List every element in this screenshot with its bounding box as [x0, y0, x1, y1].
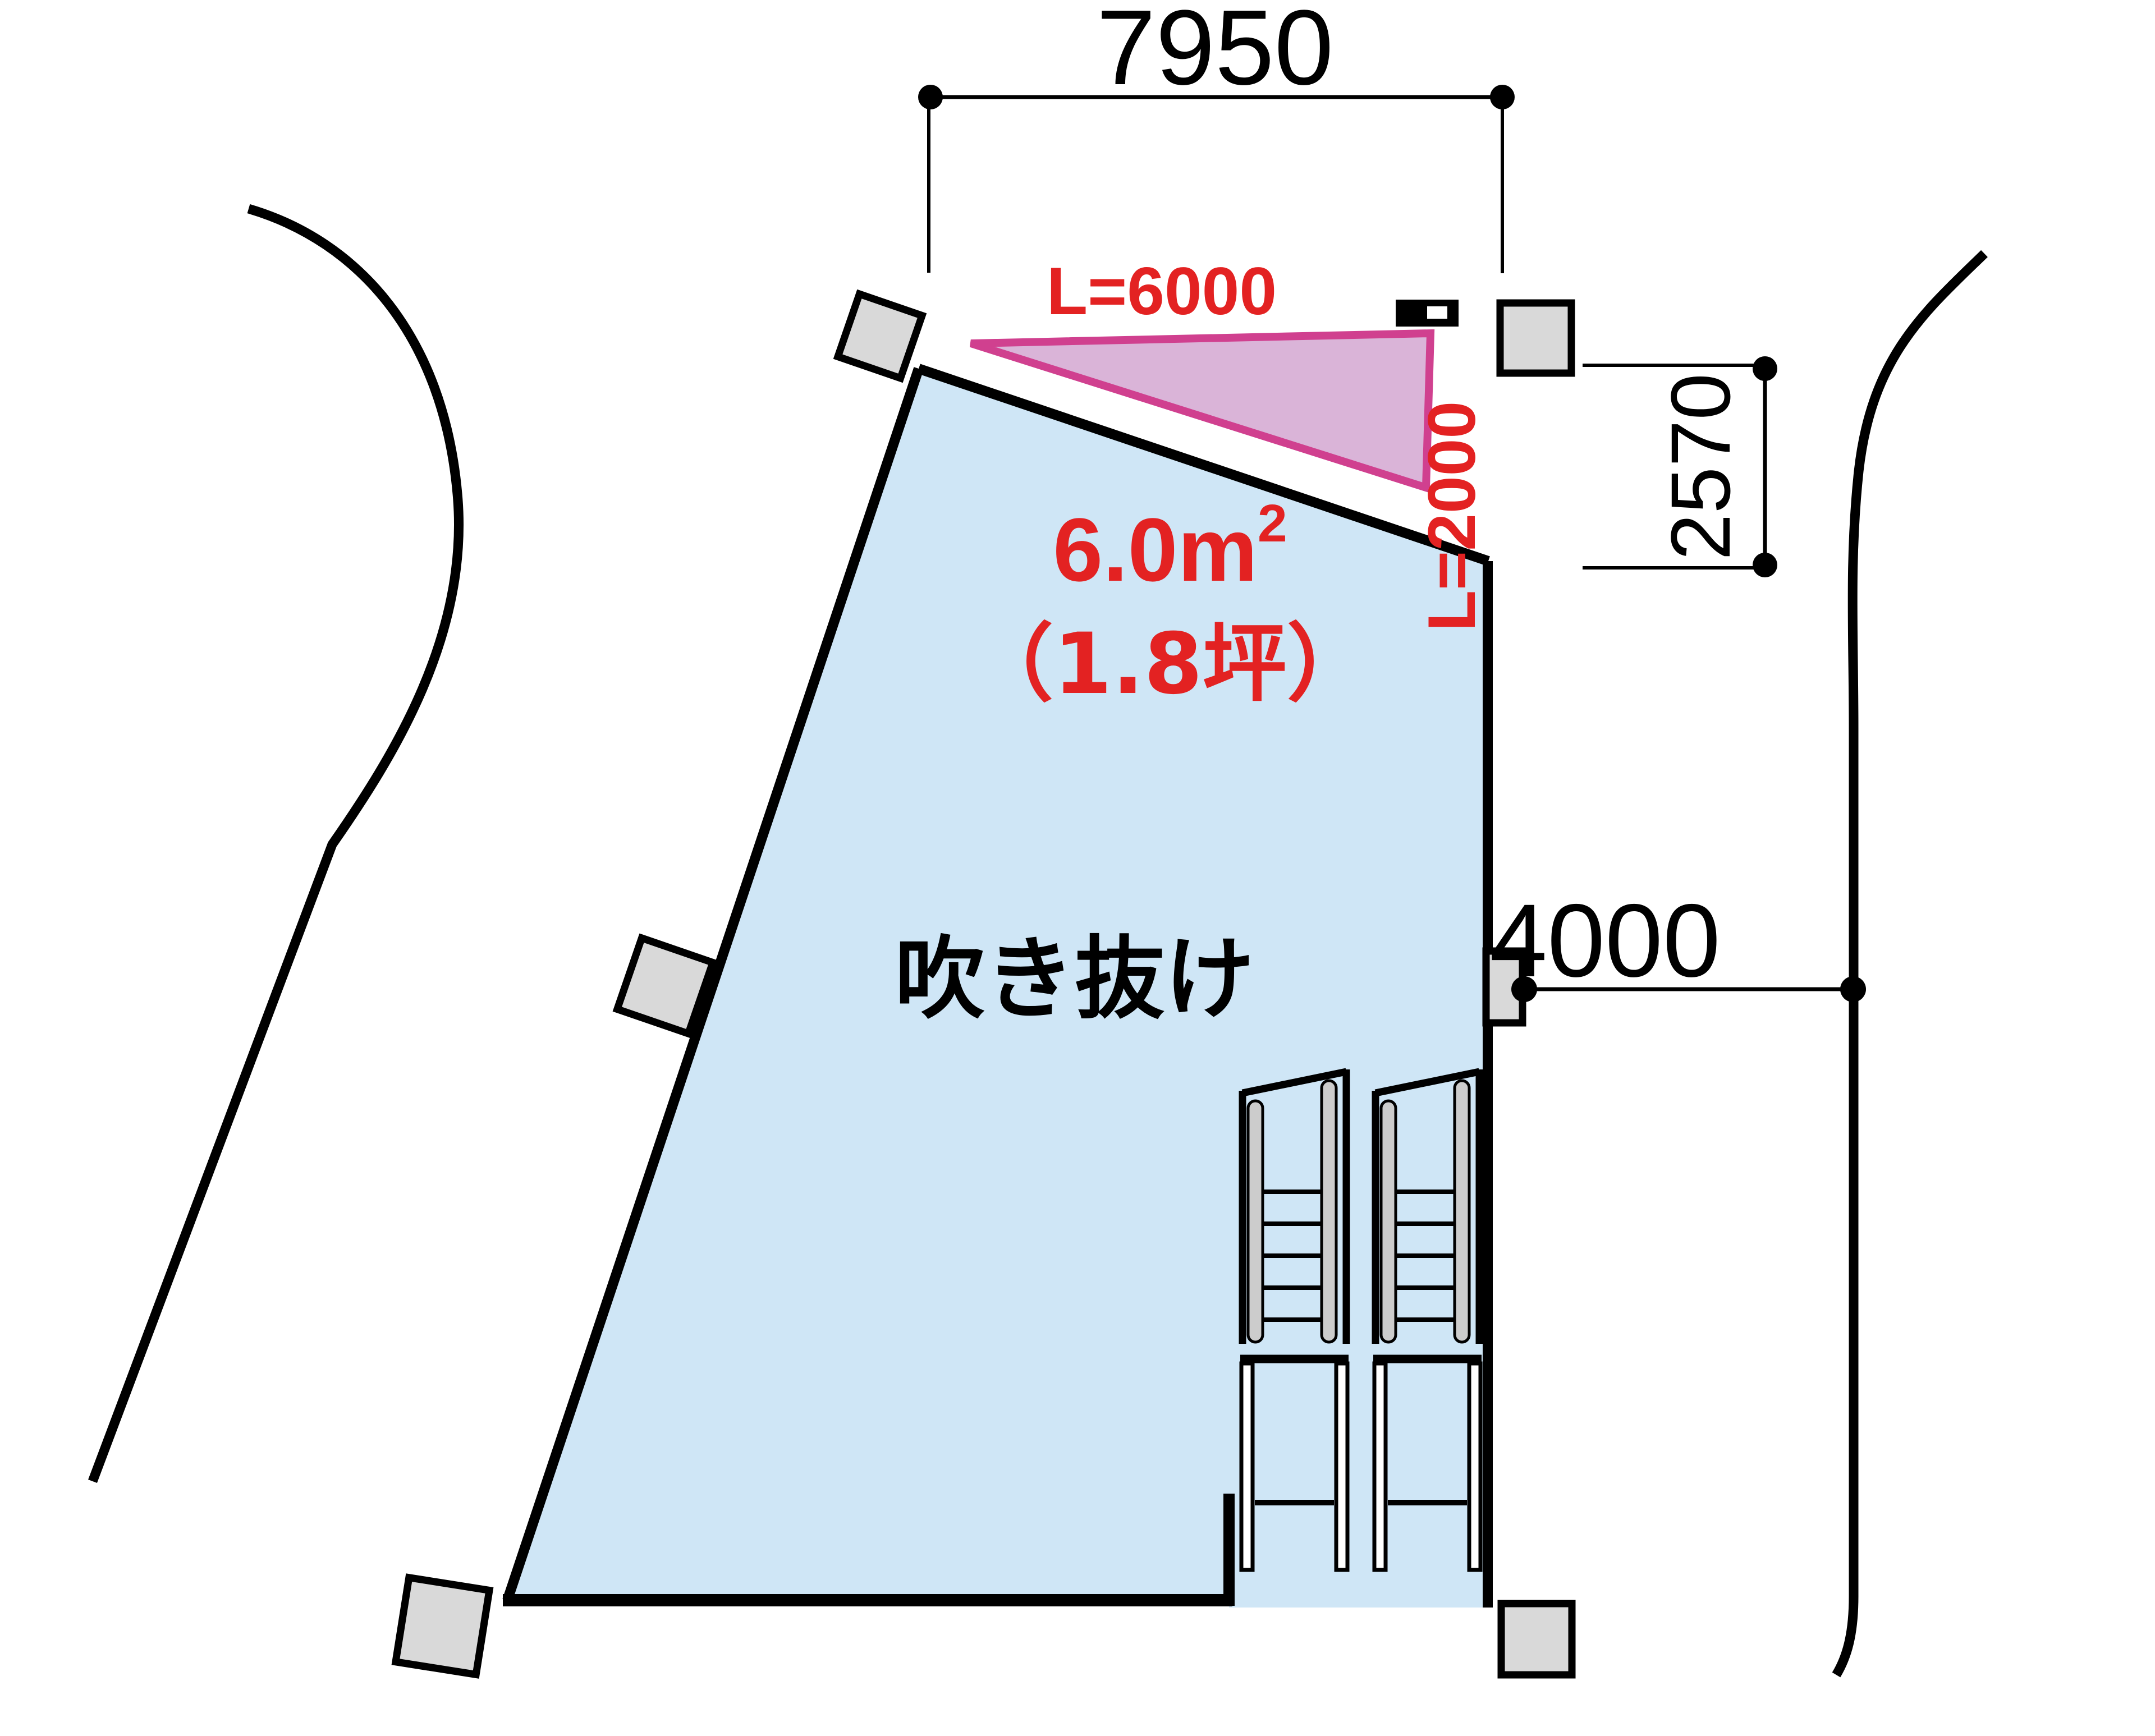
column-top-left	[838, 294, 922, 378]
road-edge-right	[1836, 254, 1984, 1675]
dimension-text-2570: 2570	[1653, 373, 1748, 561]
floor-plan-canvas: 7950 2570 4000 L=6000 L=2000 6.0m2 （1.8坪…	[0, 0, 2155, 1736]
area-value: 6.0m	[1053, 499, 1258, 600]
area-tsubo-label: （1.8坪）	[969, 616, 1371, 713]
dimension-7950: 7950	[918, 0, 1515, 273]
stair-rail	[1322, 1081, 1336, 1342]
stair-lower-bar	[1336, 1363, 1347, 1570]
column-bottom-right	[1501, 1604, 1572, 1675]
stair-rail	[1381, 1101, 1396, 1342]
column-bottom-left	[396, 1578, 489, 1675]
dimension-text-7950: 7950	[1097, 0, 1334, 107]
stair-rail	[1248, 1101, 1263, 1342]
stair-lower-bar	[1374, 1363, 1386, 1570]
dimension-dot	[1753, 553, 1777, 577]
stair-lower-bar	[1241, 1363, 1253, 1570]
dimension-4000: 4000	[1489, 883, 1866, 1002]
dimension-dot	[1490, 85, 1515, 109]
road-edge-left	[93, 209, 459, 1481]
area-label: 6.0m2	[1053, 494, 1287, 600]
area-superscript: 2	[1258, 494, 1287, 553]
void-room-label: 吹き抜け	[895, 926, 1254, 1031]
stair-lower-bar	[1469, 1363, 1480, 1570]
gate-symbol	[1396, 300, 1459, 327]
stair-rail	[1455, 1081, 1469, 1342]
louver-side-label: L=2000	[1414, 401, 1489, 631]
gate-symbol-slot	[1427, 306, 1447, 319]
dimension-dot	[1840, 976, 1866, 1002]
dimension-text-4000: 4000	[1489, 883, 1721, 999]
dimension-2570: 2570	[1583, 356, 1777, 577]
louver-length-label: L=6000	[1047, 254, 1277, 329]
dimension-dot	[918, 85, 943, 109]
dimension-dot	[1753, 356, 1777, 381]
column-top-right	[1500, 303, 1571, 373]
